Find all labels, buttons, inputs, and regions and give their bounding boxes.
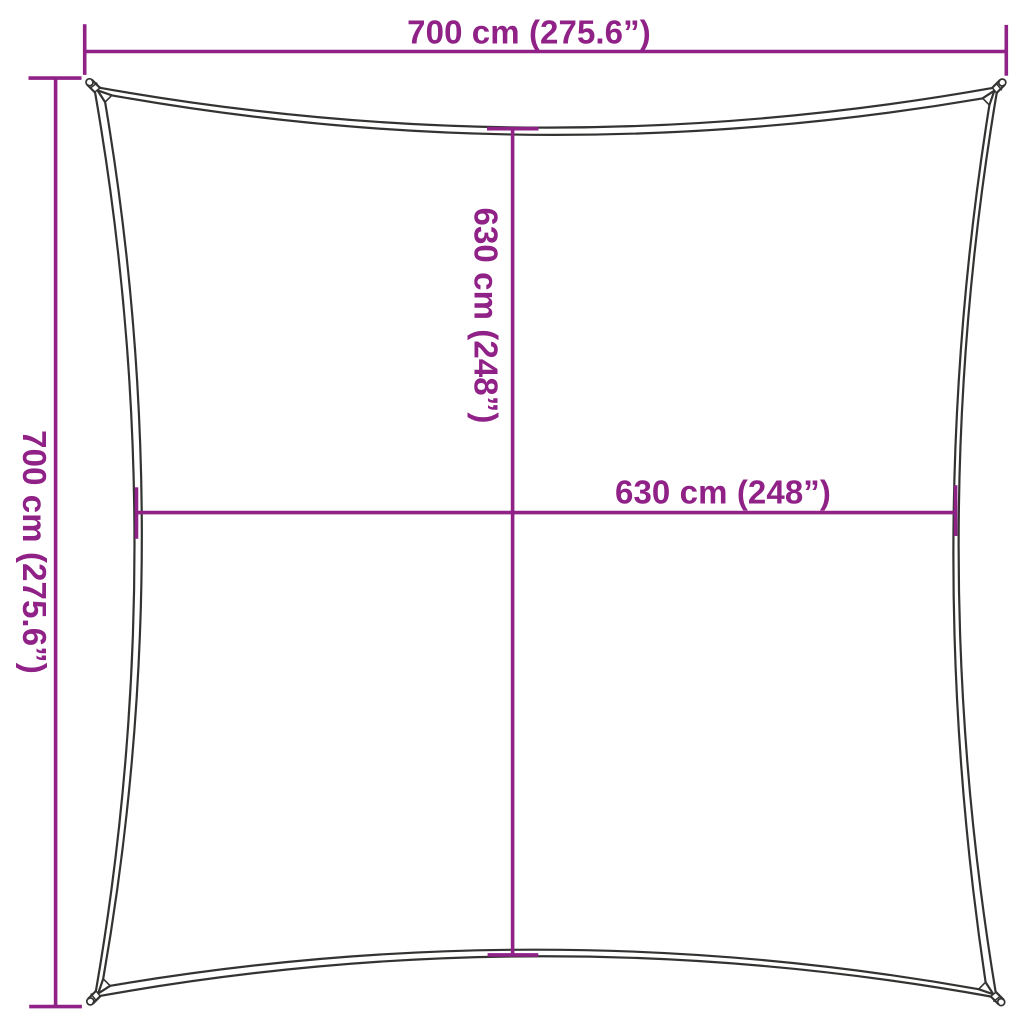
svg-text:700 cm (275.6”): 700 cm (275.6”) [407,14,651,51]
svg-text:630 cm (248”): 630 cm (248”) [468,208,505,424]
svg-text:700 cm (275.6”): 700 cm (275.6”) [16,430,53,674]
svg-text:630 cm (248”): 630 cm (248”) [615,474,831,511]
